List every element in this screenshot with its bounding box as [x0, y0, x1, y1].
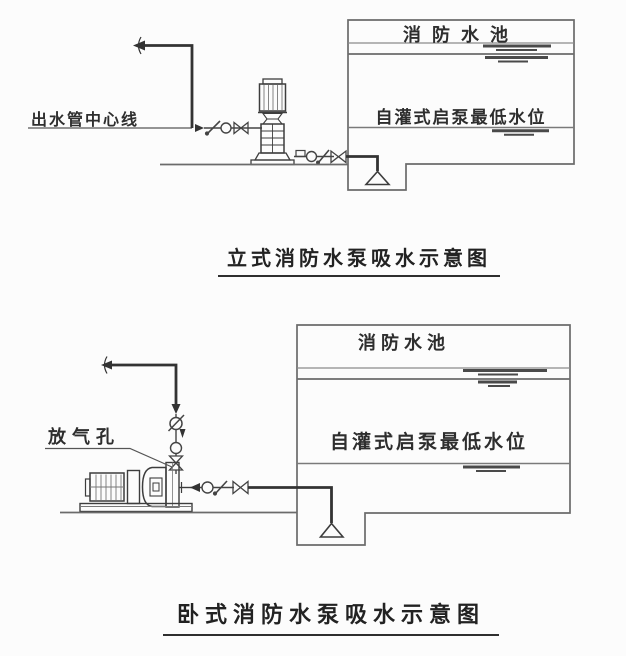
air-vent-leader: [45, 449, 172, 468]
foot-valve-icon: [321, 524, 344, 538]
diagram-canvas: [0, 0, 626, 656]
water-surface-marks: [463, 371, 547, 472]
check-valve-icon: [169, 415, 185, 431]
vertical-pump-icon: [251, 79, 294, 165]
suction-pipe: [346, 157, 389, 185]
schematic-page: 出水管中心线 消防水池 自灌式启泵最低水位 立式消防水泵吸水示意图 消防水池 自…: [0, 0, 626, 656]
flow-arrow-icon: [195, 124, 204, 132]
reducer-fitting-icon: [296, 151, 305, 157]
gate-valve-icon: [233, 482, 248, 494]
discharge-valve-train: [204, 121, 262, 135]
suction-valve-train: [190, 481, 248, 495]
discharge-valve-train: [169, 414, 186, 474]
tank-title-top: 消防水池: [403, 21, 519, 47]
air-vent-label: 放气孔: [48, 423, 120, 449]
flow-arrow-icon: [172, 404, 181, 414]
low-water-level-label-bottom: 自灌式启泵最低水位: [330, 427, 528, 454]
suction-valve-train: [294, 150, 346, 164]
flexible-joint-icon: [221, 123, 231, 133]
flexible-joint-icon: [171, 443, 182, 454]
flow-arrow-icon: [101, 361, 112, 370]
flexible-joint-icon: [307, 152, 317, 162]
flow-arrow-icon: [190, 483, 200, 492]
discharge-riser-pipe: [133, 37, 204, 132]
foot-valve-icon: [366, 172, 389, 185]
tank-title-bottom: 消防水池: [358, 329, 450, 355]
low-water-level-label-top: 自灌式启泵最低水位: [376, 103, 547, 128]
flexible-joint-icon: [202, 482, 213, 493]
outlet-centerline-label: 出水管中心线: [31, 106, 139, 130]
discharge-riser-pipe: [101, 357, 181, 415]
flow-arrow-icon: [180, 429, 186, 438]
caption-horizontal-pump: 卧式消防水泵吸水示意图: [163, 597, 499, 636]
caption-vertical-pump: 立式消防水泵吸水示意图: [218, 242, 500, 277]
